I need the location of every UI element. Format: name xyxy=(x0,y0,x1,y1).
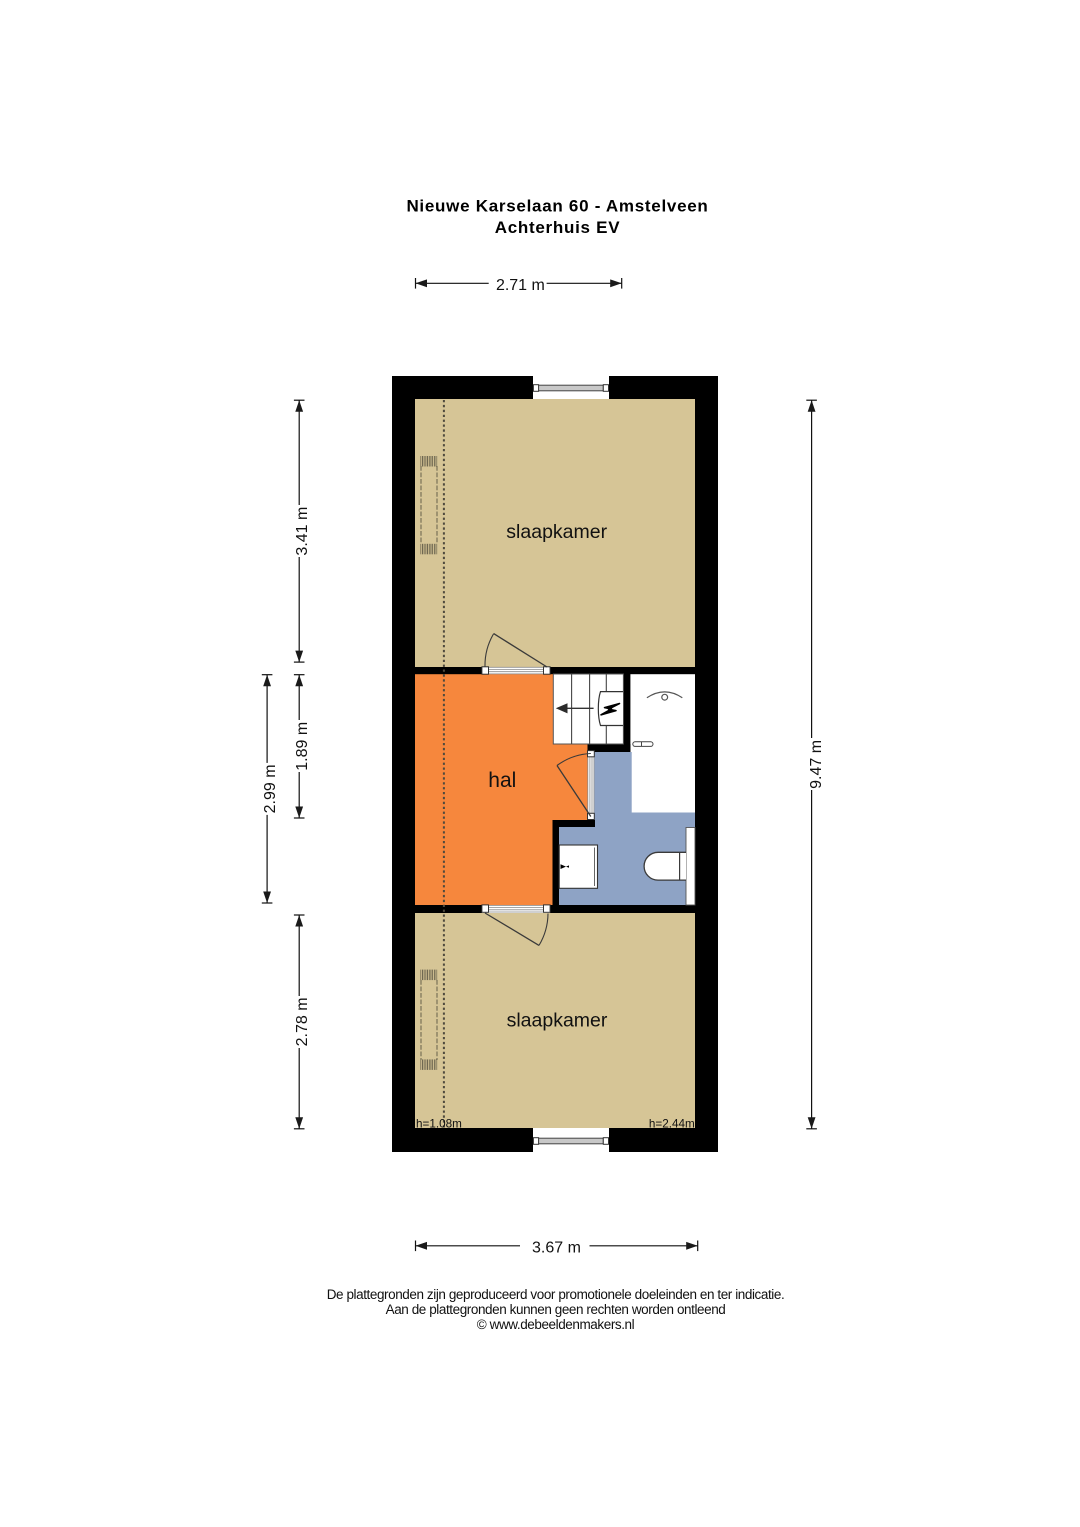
svg-text:Achterhuis EV: Achterhuis EV xyxy=(495,218,621,237)
svg-text:h=1.08m: h=1.08m xyxy=(416,1117,462,1130)
svg-text:© www.debeeldenmakers.nl: © www.debeeldenmakers.nl xyxy=(477,1317,635,1332)
svg-text:1.89 m: 1.89 m xyxy=(294,722,311,771)
svg-text:hal: hal xyxy=(488,769,516,792)
svg-text:Nieuwe Karselaan 60 - Amstelve: Nieuwe Karselaan 60 - Amstelveen xyxy=(406,197,708,216)
svg-text:3.41 m: 3.41 m xyxy=(294,507,311,556)
svg-text:Aan de plattegronden kunnen ge: Aan de plattegronden kunnen geen rechten… xyxy=(386,1302,726,1317)
svg-text:2.78 m: 2.78 m xyxy=(294,997,311,1046)
svg-text:2.99 m: 2.99 m xyxy=(262,764,279,813)
svg-text:3.67 m: 3.67 m xyxy=(532,1239,581,1256)
svg-text:slaapkamer: slaapkamer xyxy=(507,1010,608,1032)
svg-text:h=2.44m: h=2.44m xyxy=(649,1117,695,1130)
svg-text:De plattegronden zijn geproduc: De plattegronden zijn geproduceerd voor … xyxy=(327,1287,785,1302)
svg-text:slaapkamer: slaapkamer xyxy=(506,521,607,543)
svg-text:2.71 m: 2.71 m xyxy=(496,277,545,294)
svg-text:9.47 m: 9.47 m xyxy=(808,740,825,789)
